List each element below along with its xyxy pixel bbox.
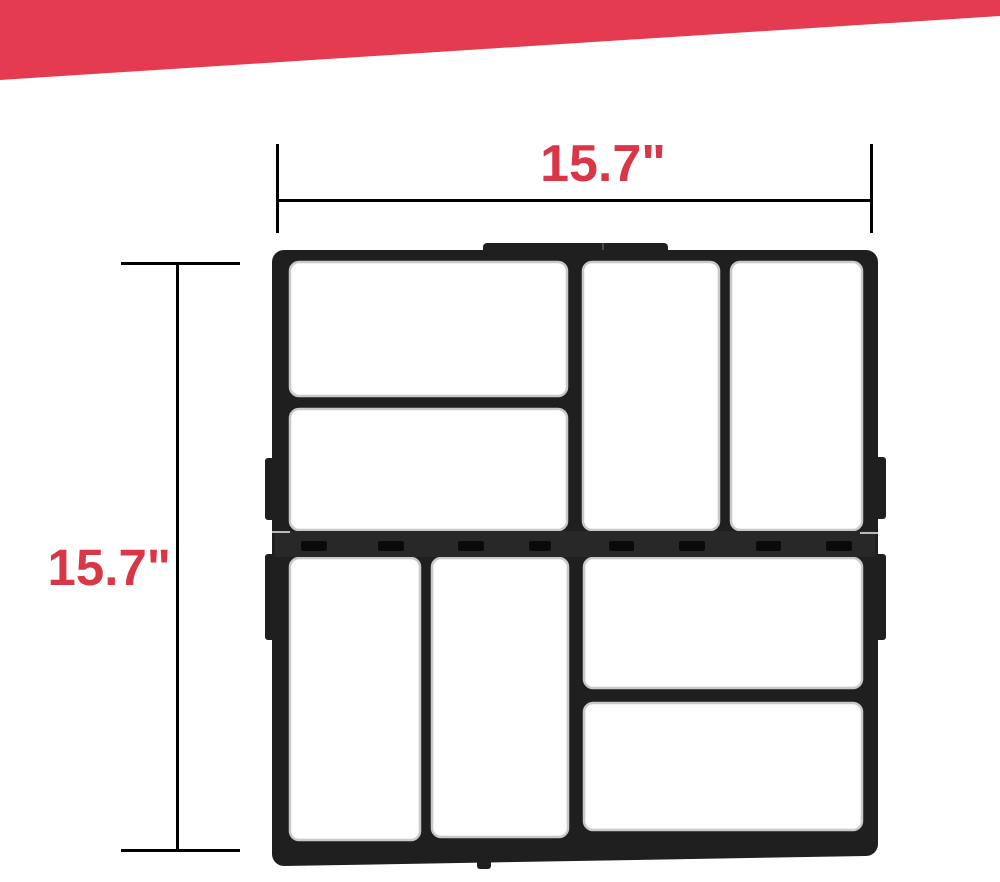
svg-text:15.7": 15.7" bbox=[540, 135, 666, 193]
svg-text:15.7": 15.7" bbox=[48, 539, 171, 596]
